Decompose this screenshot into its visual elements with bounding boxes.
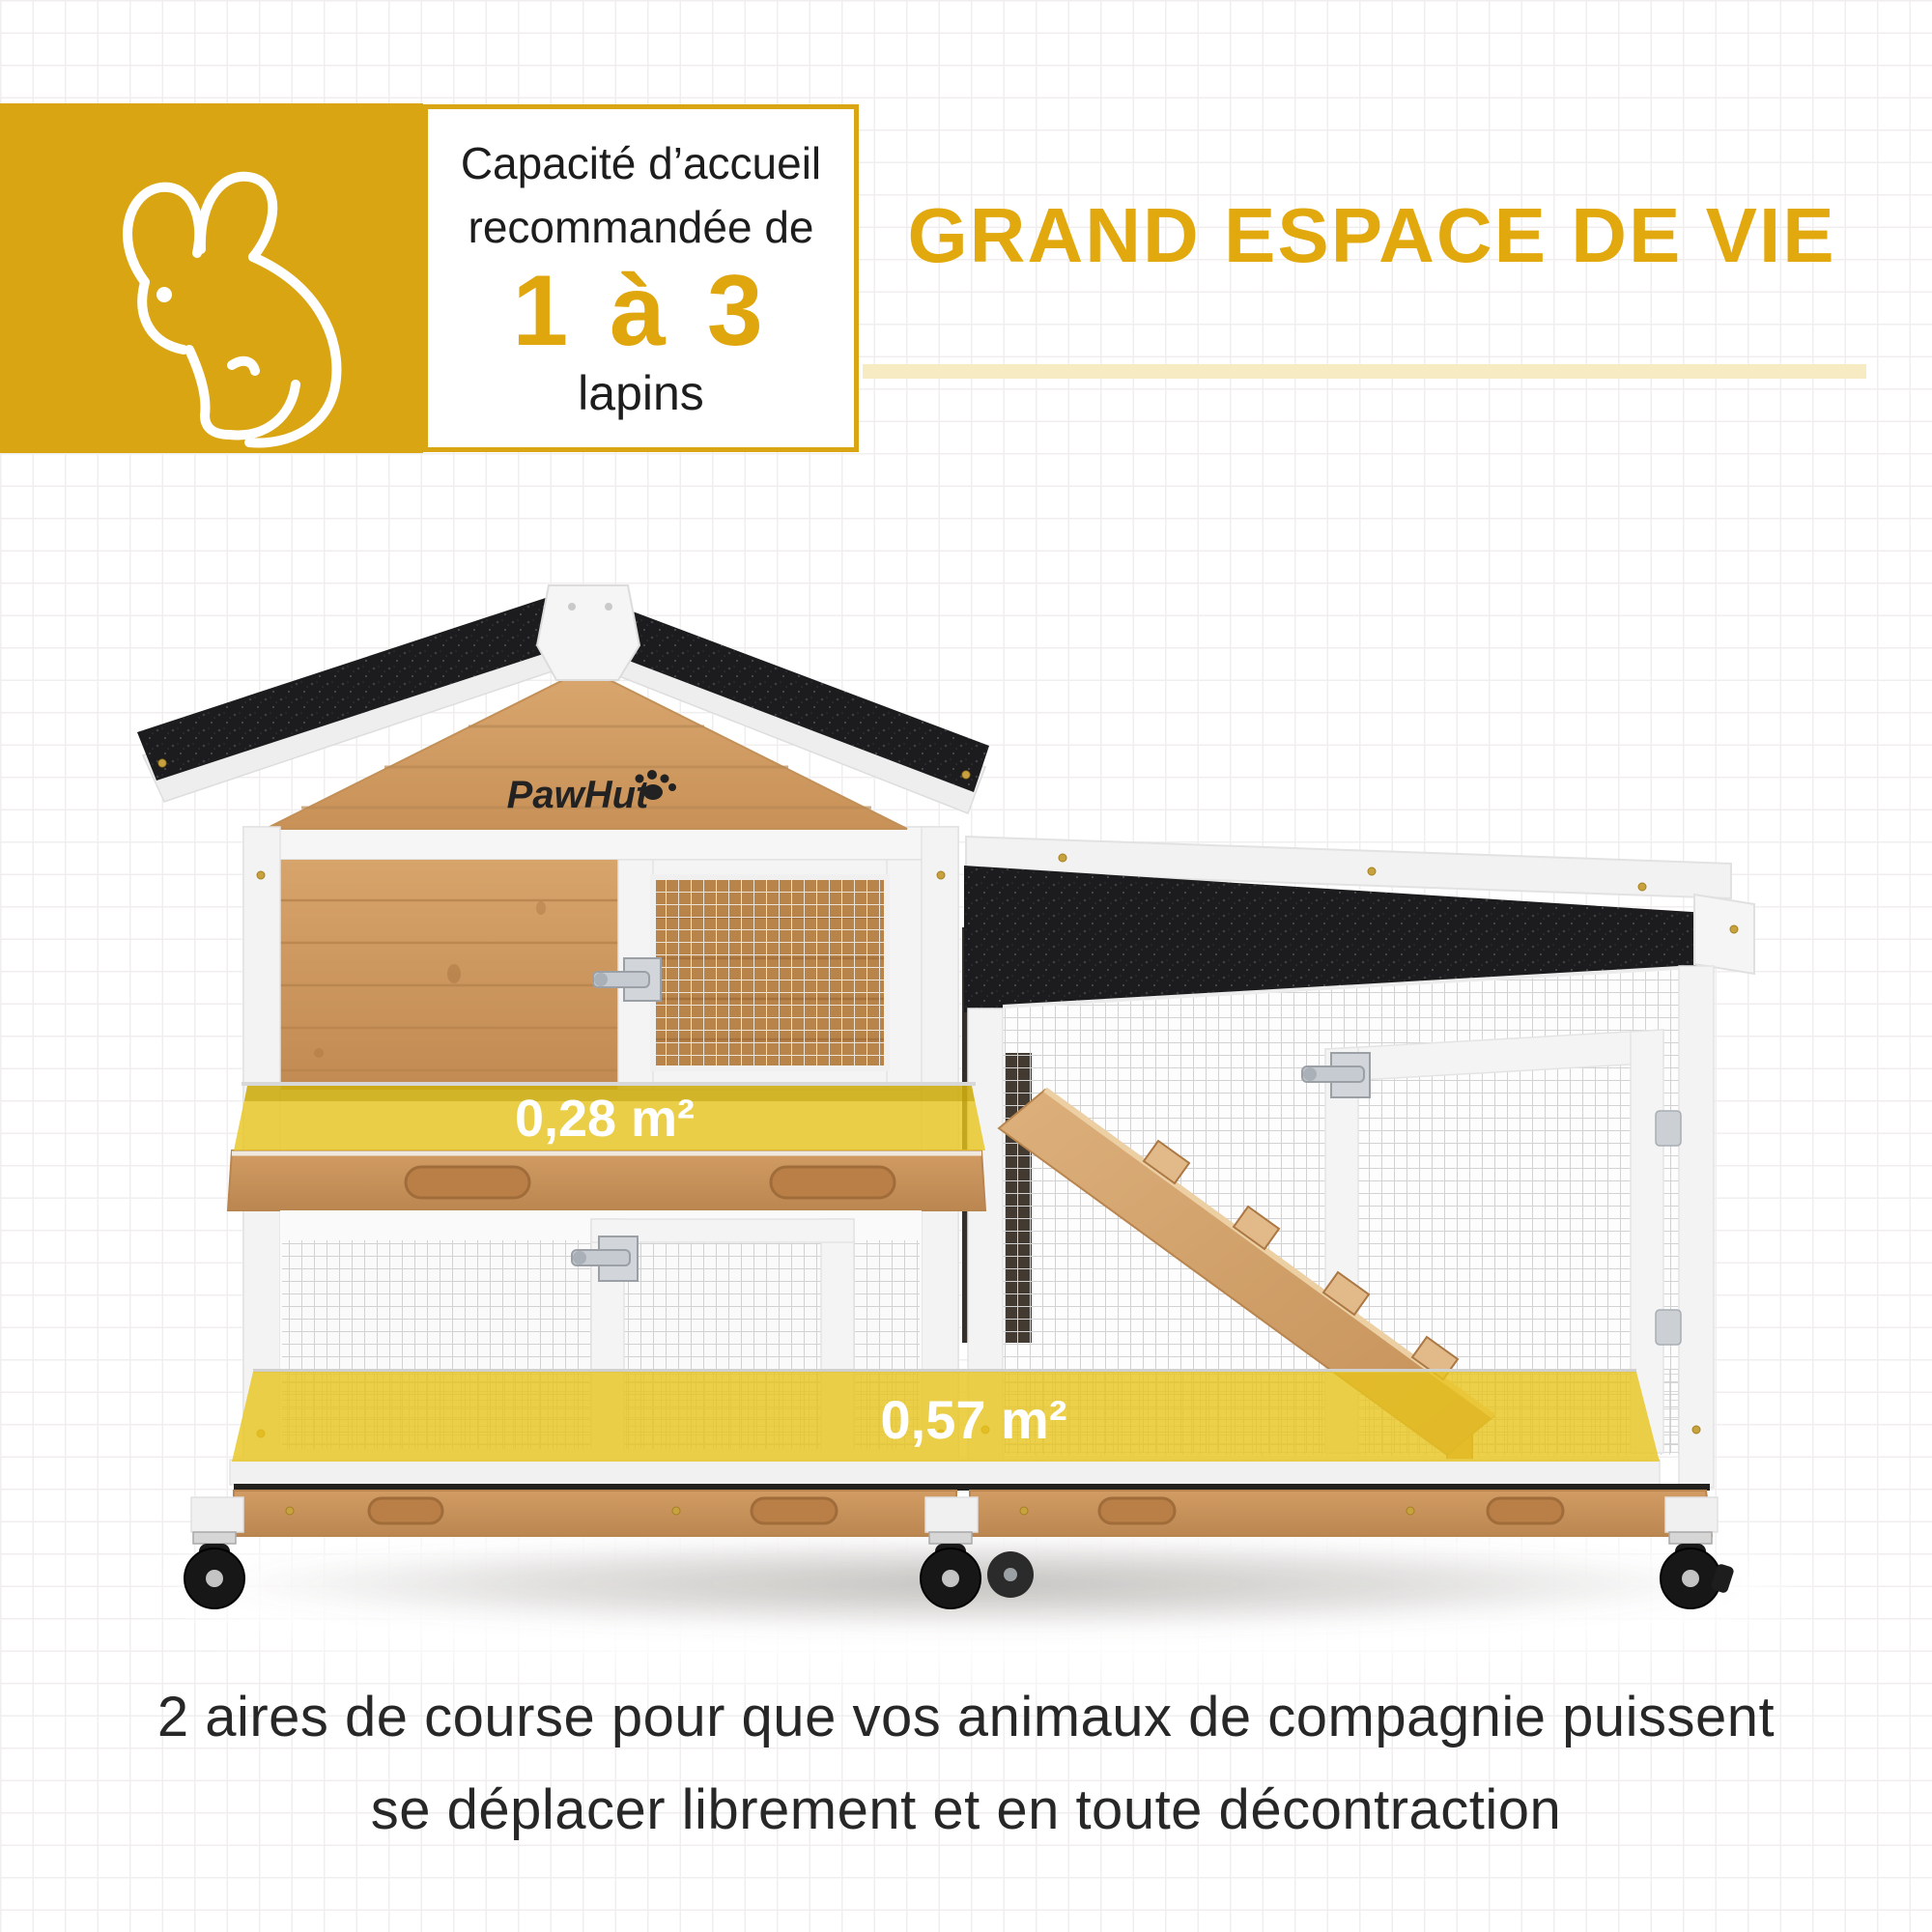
ridge-cap [537,585,639,680]
caster-wheel-icon [987,1551,1034,1598]
caster-wheel-icon [921,1532,980,1608]
caption: 2 aires de course pour que vos animaux d… [0,1671,1932,1858]
hinge-icon [1656,1310,1681,1345]
lower-area-label: 0,57 m² [881,1389,1067,1450]
upper-door-mesh [653,877,887,1068]
hutch-product-illustration: PawHut [0,0,1932,1932]
house-section: PawHut [137,585,989,1492]
caster-wheel-icon [185,1532,244,1608]
caption-line2: se déplacer librement et en toute décont… [0,1764,1932,1857]
hinge-icon [1656,1111,1681,1146]
caption-line1: 2 aires de course pour que vos animaux d… [0,1671,1932,1764]
upper-door [593,860,922,1090]
brand-logo-text: PawHut [507,774,650,816]
tray-handle [771,1167,895,1198]
area-overlay-upper: 0,28 m² [234,1086,985,1151]
upper-area-label: 0,28 m² [515,1090,695,1148]
area-overlay-lower: 0,57 m² [232,1371,1660,1462]
infographic-page: Capacité d’accueil recommandée de 1 à 3 … [0,0,1932,1932]
tray-handle [406,1167,529,1198]
